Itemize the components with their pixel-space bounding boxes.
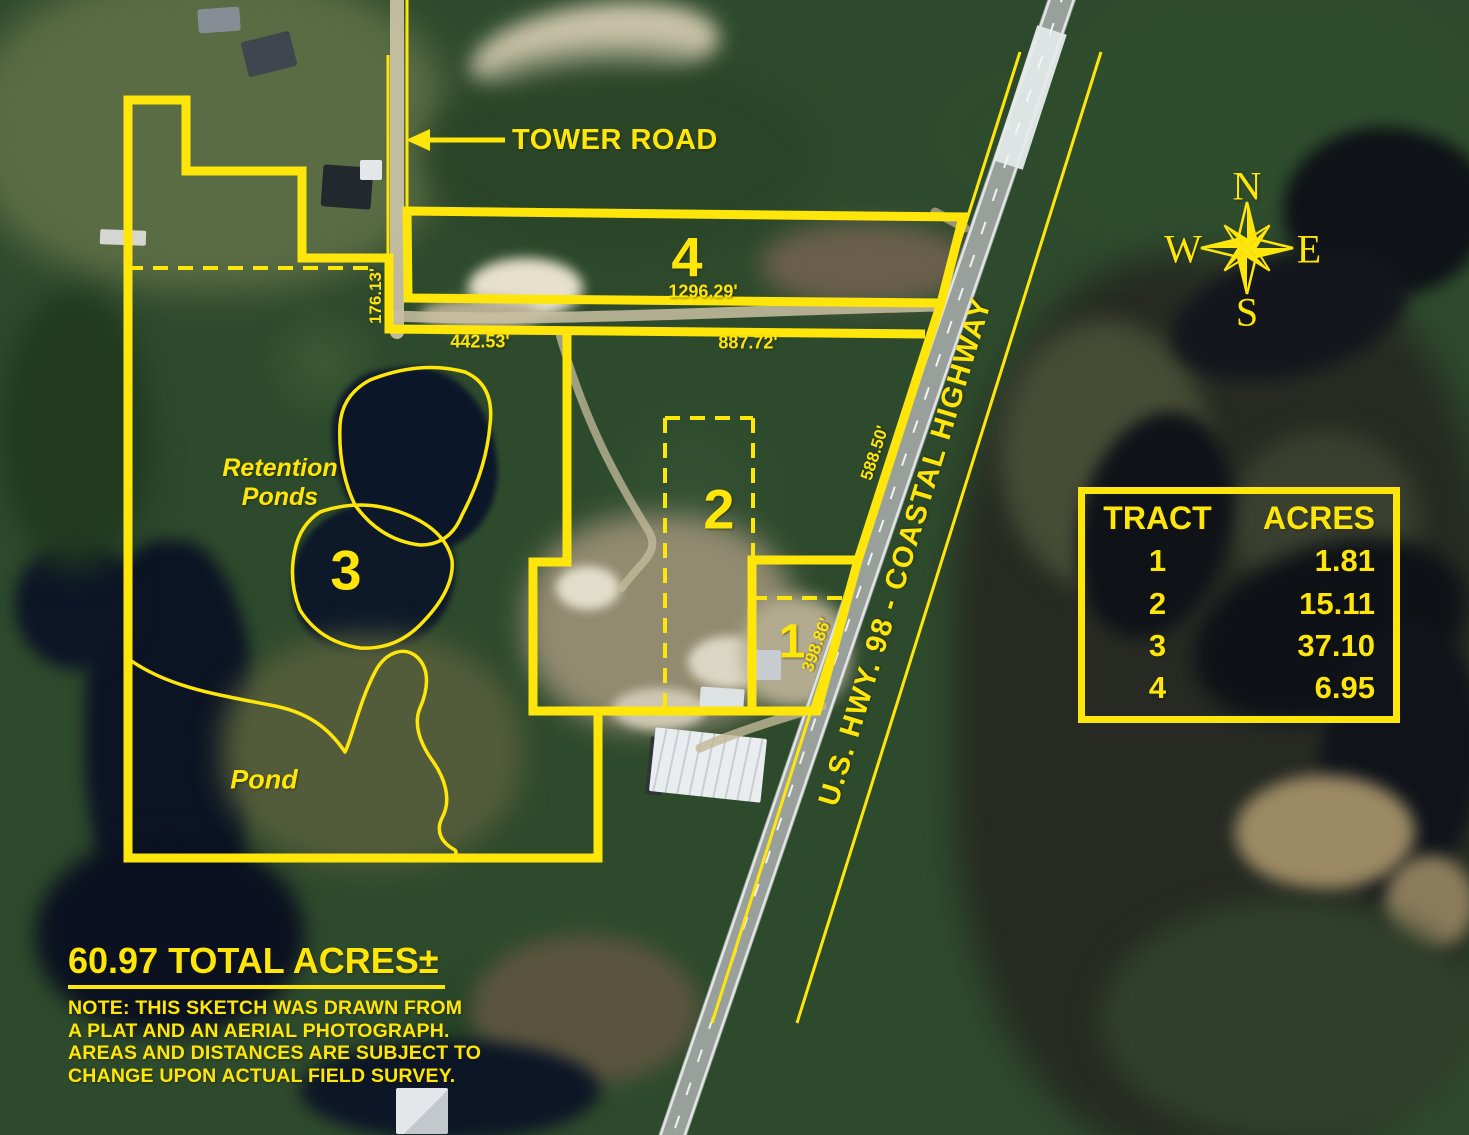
measurement-tract2-north: 887.72' <box>718 333 777 354</box>
total-acres-title: 60.97 TOTAL ACRES± <box>68 940 445 989</box>
highway-road-surface <box>660 0 1076 1135</box>
tract1-number-marker: 1 <box>779 615 806 670</box>
east-west-dirt-road <box>392 306 938 318</box>
compass-west-label: W <box>1164 226 1202 273</box>
highway-east-row-line <box>797 52 1101 1023</box>
pond-outlines <box>130 368 491 859</box>
note-line-3: AREAS AND DISTANCES ARE SUBJECT TO <box>68 1042 481 1065</box>
retention-ponds-label-line2: Ponds <box>222 483 337 512</box>
survey-note: NOTE: THIS SKETCH WAS DRAWN FROM A PLAT … <box>68 997 481 1087</box>
note-line-4: CHANGE UPON ACTUAL FIELD SURVEY. <box>68 1065 481 1088</box>
acres-table-header-tract: TRACT <box>1085 500 1230 537</box>
acres-table-row: 3 37.10 <box>1085 628 1393 664</box>
acres-table-acres-4: 6.95 <box>1230 670 1393 706</box>
dashed-inner-parcel-tract2 <box>665 418 753 709</box>
compass-rose-icon <box>1201 202 1293 294</box>
compass-south-label: S <box>1236 289 1258 336</box>
survey-aerial-map: TOWER ROAD U.S. HWY. 98 - COASTAL HIGHWA… <box>0 0 1469 1135</box>
acres-table-row: 4 6.95 <box>1085 670 1393 706</box>
acres-table-row: 2 15.11 <box>1085 586 1393 622</box>
retention-ponds-label: Retention Ponds <box>222 454 337 512</box>
note-line-2: A PLAT AND AN AERIAL PHOTOGRAPH. <box>68 1020 481 1043</box>
highway-bridge <box>1008 30 1052 165</box>
acres-table-row: 1 1.81 <box>1085 543 1393 579</box>
acres-table-header-acres: ACRES <box>1230 500 1393 537</box>
tract2-number-marker: 2 <box>703 477 734 542</box>
measurement-tract3-north: 442.53' <box>450 332 509 353</box>
tract4-number-marker: 4 <box>671 225 702 290</box>
title-block: 60.97 TOTAL ACRES± NOTE: THIS SKETCH WAS… <box>68 940 481 1087</box>
acres-table-tract-1: 1 <box>1085 543 1230 579</box>
retention-pond-lower-outline <box>292 505 452 648</box>
tower-road-arrow <box>406 129 505 151</box>
pond-marsh-wavy-outline <box>130 651 456 858</box>
acres-table-acres-3: 37.10 <box>1230 628 1393 664</box>
tower-road-label: TOWER ROAD <box>512 124 718 157</box>
tract-acres-table: TRACT ACRES 1 1.81 2 15.11 3 37.10 4 6.9… <box>1078 487 1400 723</box>
compass-north-label: N <box>1233 163 1262 210</box>
measurement-tower-frontage: 176.13' <box>366 268 386 324</box>
acres-table-acres-2: 15.11 <box>1230 586 1393 622</box>
acres-table-tract-3: 3 <box>1085 628 1230 664</box>
acres-table-header-row: TRACT ACRES <box>1085 500 1393 537</box>
interior-trail <box>560 336 652 588</box>
retention-ponds-label-line1: Retention <box>222 454 337 483</box>
acres-table-tract-4: 4 <box>1085 670 1230 706</box>
pond-label: Pond <box>230 765 298 796</box>
compass-east-label: E <box>1297 226 1321 273</box>
acres-table-acres-1: 1.81 <box>1230 543 1393 579</box>
right-of-way-lines <box>388 0 1101 1023</box>
note-line-1: NOTE: THIS SKETCH WAS DRAWN FROM <box>68 997 481 1020</box>
tract3-number-marker: 3 <box>330 538 361 603</box>
acres-table-tract-2: 2 <box>1085 586 1230 622</box>
